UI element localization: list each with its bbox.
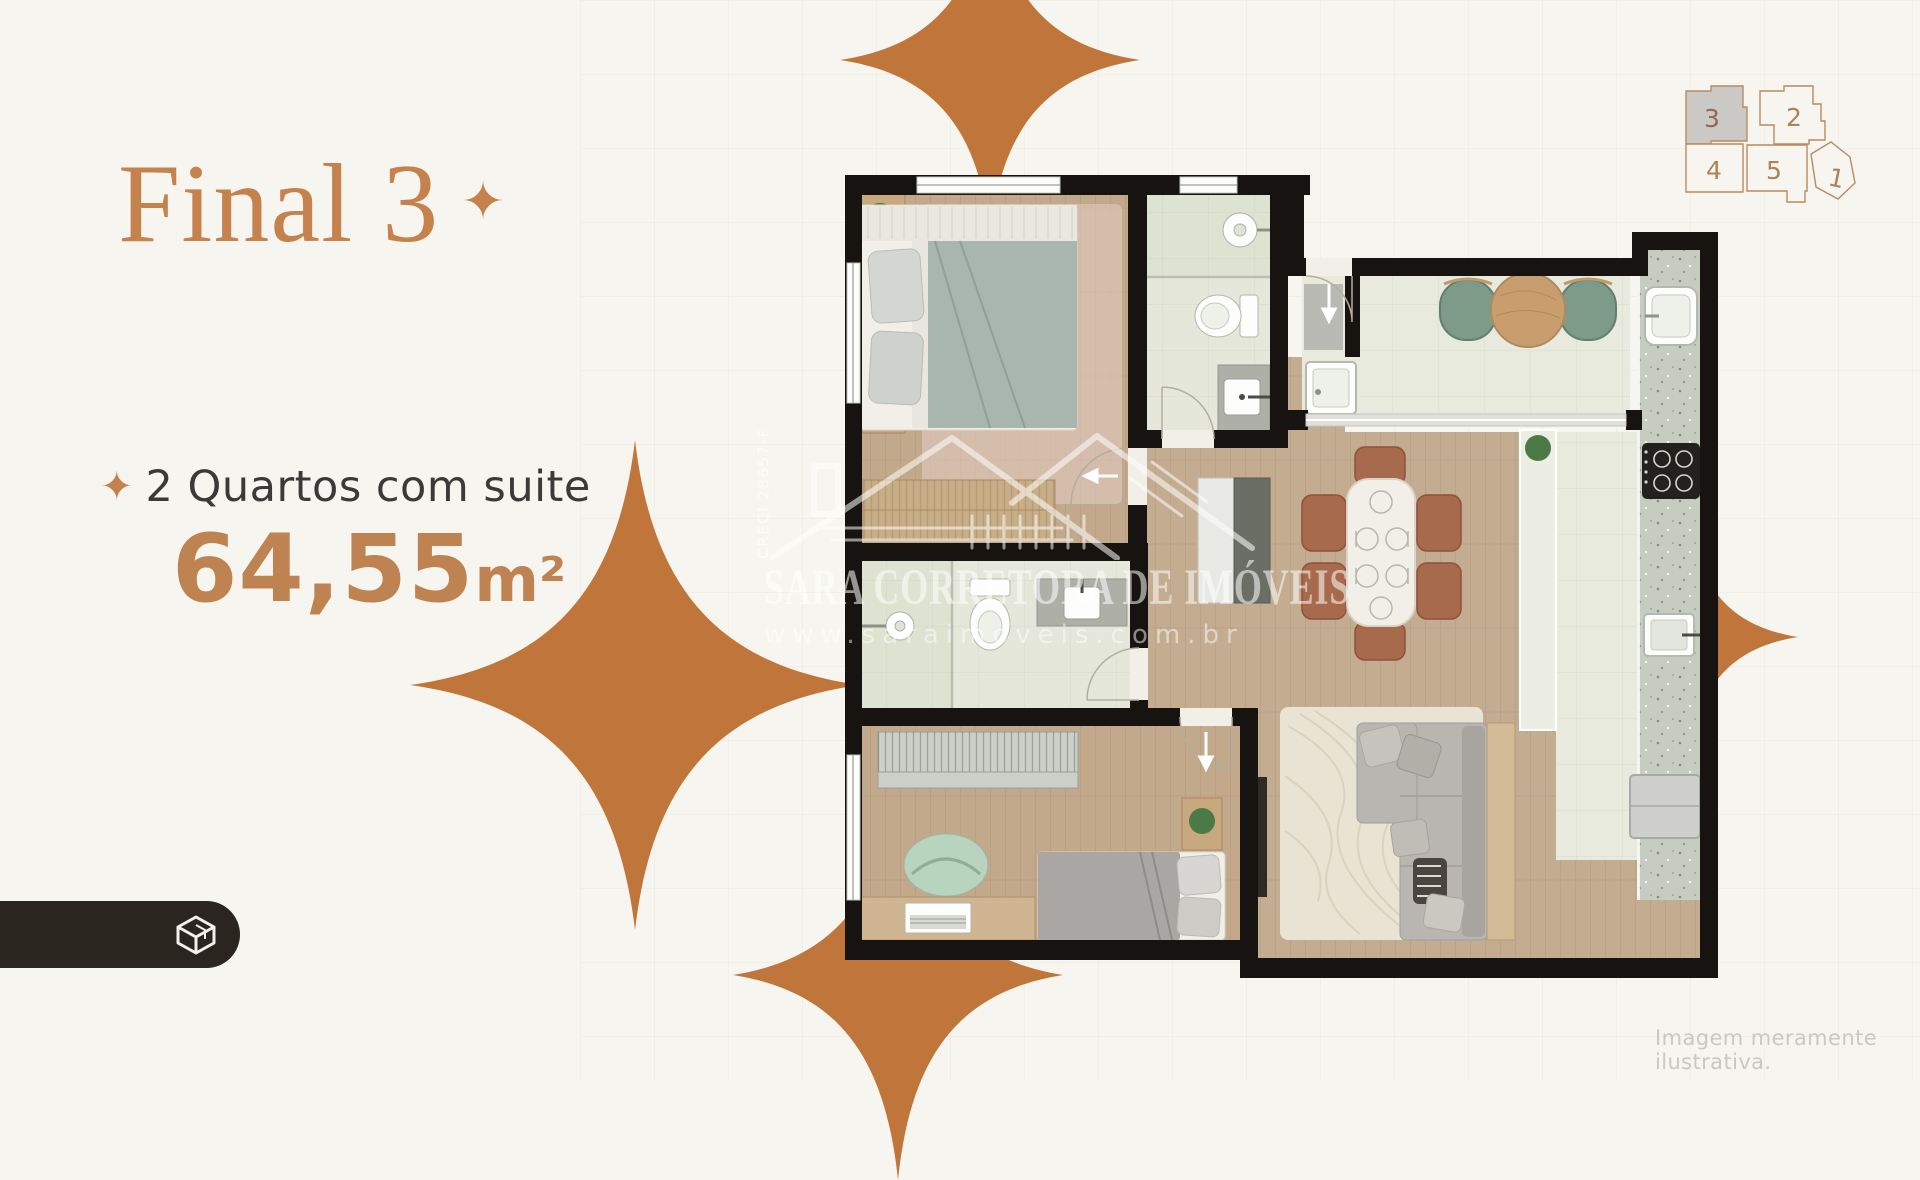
pillow bbox=[868, 248, 925, 323]
keyplan-label-3: 3 bbox=[1704, 104, 1720, 133]
pillow bbox=[1177, 897, 1222, 938]
feature-label: 2 Quartos com suite bbox=[146, 462, 591, 512]
feature-row: ✦ 2 Quartos com suite bbox=[100, 462, 591, 512]
area-unit: m² bbox=[474, 543, 566, 616]
vanity-sink bbox=[1037, 579, 1127, 626]
desk-chair bbox=[904, 834, 988, 896]
title-star-icon: ✦ bbox=[461, 172, 506, 232]
kitchen-sink bbox=[1644, 614, 1700, 656]
small-sink bbox=[1306, 362, 1356, 414]
keyplan-label-2: 2 bbox=[1786, 103, 1802, 132]
dining-chair bbox=[1302, 563, 1346, 619]
balcony-chair bbox=[1560, 280, 1616, 340]
dining-chair bbox=[1302, 495, 1346, 551]
toilet bbox=[970, 579, 1010, 650]
single-bed bbox=[1038, 852, 1225, 940]
feature-star-icon: ✦ bbox=[100, 467, 134, 507]
area-row: 64,55m² bbox=[172, 516, 566, 624]
area-value: 64,55 bbox=[172, 515, 474, 624]
balcony bbox=[1440, 273, 1616, 347]
cooktop bbox=[1642, 443, 1700, 499]
wardrobe bbox=[878, 732, 1078, 788]
floor-plan bbox=[840, 166, 1720, 980]
tv-panel bbox=[1257, 777, 1267, 897]
console bbox=[1487, 723, 1515, 940]
brand-pill bbox=[0, 901, 240, 968]
pillow bbox=[1176, 854, 1221, 896]
floor-plan-svg bbox=[840, 166, 1720, 980]
pillow bbox=[868, 331, 924, 406]
laptop bbox=[905, 903, 971, 933]
dining-chair bbox=[1417, 563, 1461, 619]
pillow bbox=[1390, 819, 1430, 858]
hall-cabinet bbox=[1198, 478, 1270, 603]
fridge bbox=[1630, 775, 1700, 838]
plant bbox=[1525, 435, 1551, 461]
double-bed bbox=[860, 205, 1077, 430]
dining-chair bbox=[1355, 622, 1405, 660]
isometric-cube-logo-icon bbox=[174, 913, 218, 957]
keyplan-label-5: 5 bbox=[1766, 156, 1782, 185]
suite-bedroom bbox=[857, 193, 1077, 540]
pillow bbox=[1422, 893, 1465, 933]
vanity-sink bbox=[1218, 365, 1270, 431]
suite-wardrobe bbox=[863, 480, 1055, 540]
toilet bbox=[1195, 295, 1258, 337]
page-title: Final 3✦ bbox=[118, 148, 678, 260]
page: { "panel": { "title": "Final 3", "title_… bbox=[0, 0, 1920, 1080]
living-room bbox=[1280, 707, 1515, 940]
dining-table bbox=[1347, 479, 1415, 626]
balcony-chair bbox=[1440, 280, 1496, 340]
title-text: Final 3 bbox=[118, 142, 439, 266]
dining-chair bbox=[1417, 495, 1461, 551]
disclaimer-caption: Imagem meramente ilustrativa. bbox=[1655, 1026, 1920, 1074]
plant bbox=[1189, 808, 1215, 834]
laundry-tub bbox=[1645, 287, 1697, 345]
